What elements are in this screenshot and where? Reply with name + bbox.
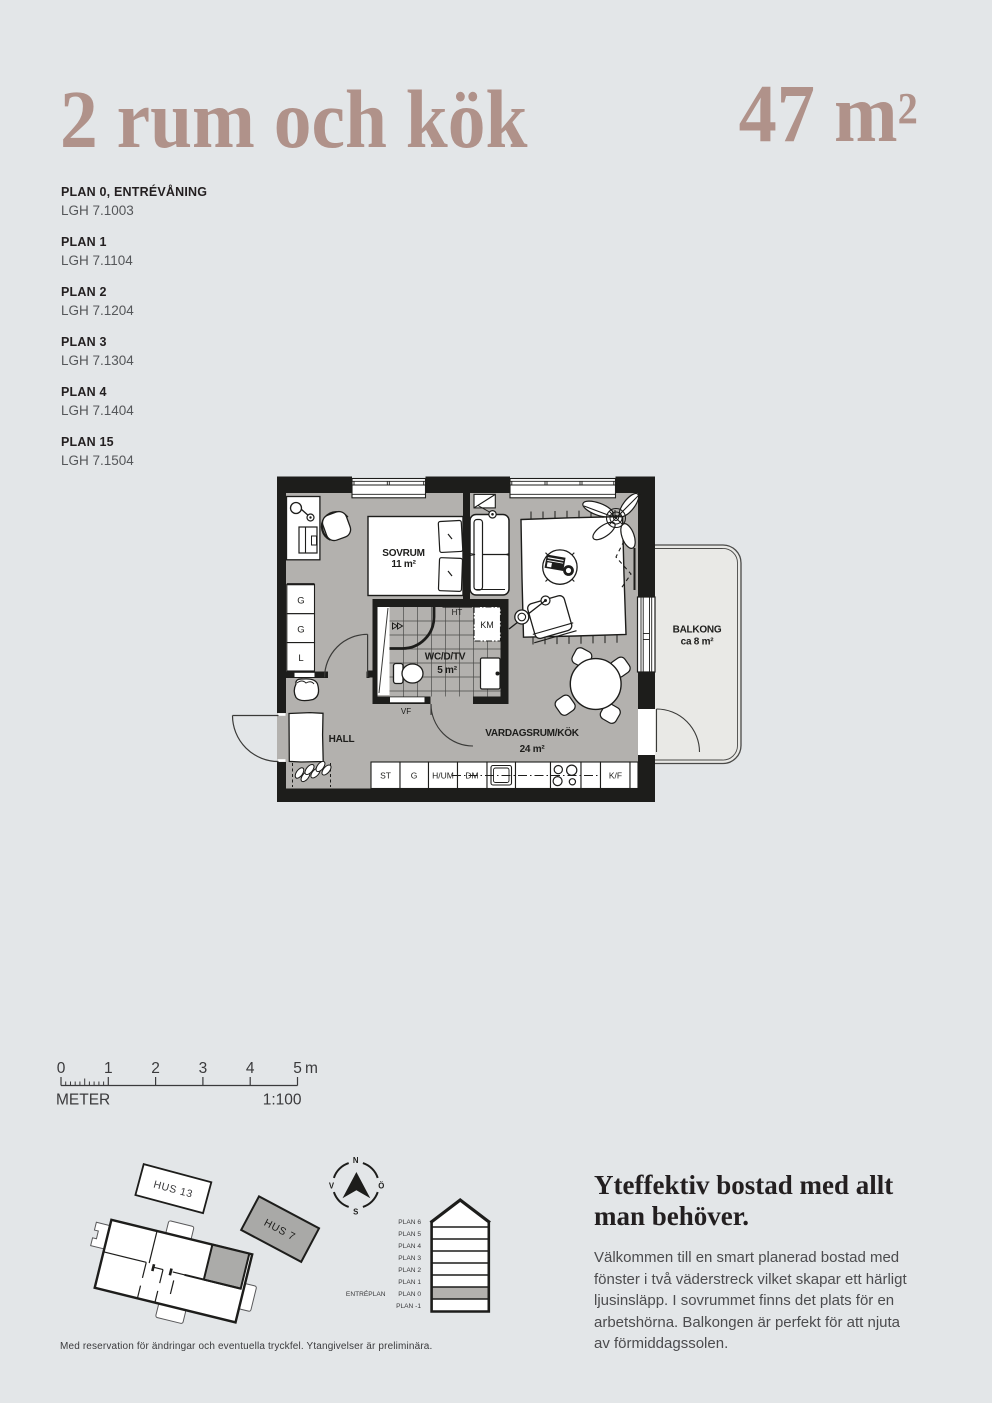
svg-text:H/UM: H/UM bbox=[432, 771, 454, 781]
svg-text:PLAN 0: PLAN 0 bbox=[398, 1291, 421, 1298]
svg-text:K/F: K/F bbox=[609, 771, 622, 781]
svg-text:BALKONG: BALKONG bbox=[673, 625, 722, 636]
svg-text:m: m bbox=[305, 1060, 318, 1077]
svg-text:SOVRUM: SOVRUM bbox=[382, 548, 424, 559]
svg-text:VF: VF bbox=[401, 707, 411, 716]
svg-text:3: 3 bbox=[199, 1060, 208, 1077]
svg-text:1:100: 1:100 bbox=[263, 1092, 302, 1109]
svg-text:5: 5 bbox=[293, 1060, 302, 1077]
svg-text:DM: DM bbox=[465, 771, 478, 781]
svg-text:WC/D/TV: WC/D/TV bbox=[425, 652, 466, 663]
svg-text:11 m²: 11 m² bbox=[391, 559, 416, 570]
svg-text:ST: ST bbox=[380, 771, 391, 781]
svg-text:HALL: HALL bbox=[329, 734, 355, 745]
svg-text:G: G bbox=[297, 596, 304, 607]
svg-text:HT: HT bbox=[452, 608, 463, 617]
svg-text:2: 2 bbox=[151, 1060, 160, 1077]
svg-text:V: V bbox=[329, 1181, 335, 1190]
svg-text:METER: METER bbox=[56, 1092, 110, 1109]
svg-text:N: N bbox=[353, 1156, 359, 1165]
svg-text:PLAN 5: PLAN 5 bbox=[398, 1231, 421, 1238]
svg-text:PLAN 3: PLAN 3 bbox=[398, 1255, 421, 1262]
svg-text:PLAN 1: PLAN 1 bbox=[398, 1279, 421, 1286]
svg-text:PLAN 6: PLAN 6 bbox=[398, 1219, 421, 1226]
svg-text:PLAN 4: PLAN 4 bbox=[398, 1243, 421, 1250]
svg-text:G: G bbox=[411, 771, 418, 781]
svg-text:ca 8 m²: ca 8 m² bbox=[681, 637, 715, 648]
svg-text:G: G bbox=[297, 625, 304, 636]
svg-text:5 m²: 5 m² bbox=[437, 665, 457, 676]
svg-text:KM: KM bbox=[480, 620, 494, 630]
svg-text:4: 4 bbox=[246, 1060, 255, 1077]
svg-text:VARDAGSRUM/KÖK: VARDAGSRUM/KÖK bbox=[485, 726, 580, 739]
svg-text:0: 0 bbox=[57, 1060, 66, 1077]
svg-text:L: L bbox=[298, 653, 303, 664]
svg-text:ENTRÉPLAN: ENTRÉPLAN bbox=[346, 1289, 386, 1298]
svg-text:1: 1 bbox=[104, 1060, 113, 1077]
svg-text:PLAN 2: PLAN 2 bbox=[398, 1267, 421, 1274]
svg-text:24 m²: 24 m² bbox=[520, 744, 546, 755]
svg-text:PLAN -1: PLAN -1 bbox=[396, 1303, 421, 1310]
svg-text:Ö: Ö bbox=[378, 1181, 384, 1190]
svg-text:S: S bbox=[353, 1208, 358, 1217]
